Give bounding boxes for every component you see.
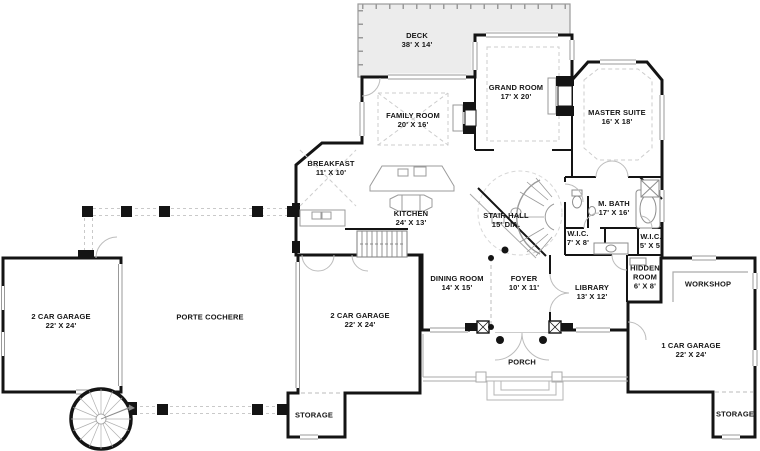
room-label-m-bath: M. BATH17' X 16'	[598, 199, 630, 217]
room-label-garage-right: 1 CAR GARAGE22' X 24'	[661, 341, 720, 359]
room-label-master-suite: MASTER SUITE16' X 18'	[588, 108, 646, 126]
porch-column-icon	[539, 336, 547, 344]
garage-doors-icon	[117, 262, 302, 388]
room-label-garage-middle: 2 CAR GARAGE22' X 24'	[330, 311, 389, 329]
room-label-family-room: FAMILY ROOM20' X 16'	[386, 111, 440, 129]
room-label-storage-right: STORAGE	[716, 410, 754, 419]
room-label-kitchen: KITCHEN24' X 13'	[394, 209, 428, 227]
fireplace-icon	[453, 102, 476, 134]
spiral-staircase-icon	[71, 389, 135, 449]
room-label-porch: PORCH	[508, 358, 536, 367]
porch-steps-icon	[487, 381, 563, 400]
room-label-library: LIBRARY13' X 12'	[575, 283, 609, 301]
vanity-icon	[594, 243, 628, 254]
room-label-storage-middle: STORAGE	[295, 411, 333, 420]
column-marker	[488, 255, 494, 261]
floor-plan-drawing	[0, 0, 760, 451]
room-label-foyer: FOYER10' X 11'	[509, 274, 539, 292]
room-label-wic-2: W.I.C.5' X 5'	[640, 232, 662, 250]
room-label-workshop: WORKSHOP	[685, 280, 731, 289]
room-label-stair-hall: STAIR HALL15' DIA.	[483, 211, 529, 229]
floor-plan: DECK38' X 14' FAMILY ROOM20' X 16' GRAND…	[0, 0, 760, 451]
linen-closet-icon	[641, 180, 659, 197]
room-label-deck: DECK38' X 14'	[402, 31, 433, 49]
room-label-wic-1: W.I.C.7' X 8'	[567, 229, 589, 247]
room-label-garage-left: 2 CAR GARAGE22' X 24'	[31, 312, 90, 330]
garage-wall-pier	[78, 250, 94, 259]
porch-structure	[423, 334, 628, 400]
room-label-breakfast: BREAKFAST11' X 10'	[307, 159, 354, 177]
room-label-grand-room: GRAND ROOM17' X 20'	[489, 83, 543, 101]
room-label-hidden-room: HIDDEN ROOM6' X 8'	[625, 264, 665, 291]
column-marker	[488, 324, 494, 330]
porch-column-icon	[496, 336, 504, 344]
room-label-porte-cochere: PORTE COCHERE	[176, 313, 243, 322]
straight-staircase-icon	[357, 231, 407, 257]
room-label-dining-room: DINING ROOM14' X 15'	[430, 274, 483, 292]
fireplace-icon	[548, 76, 574, 116]
